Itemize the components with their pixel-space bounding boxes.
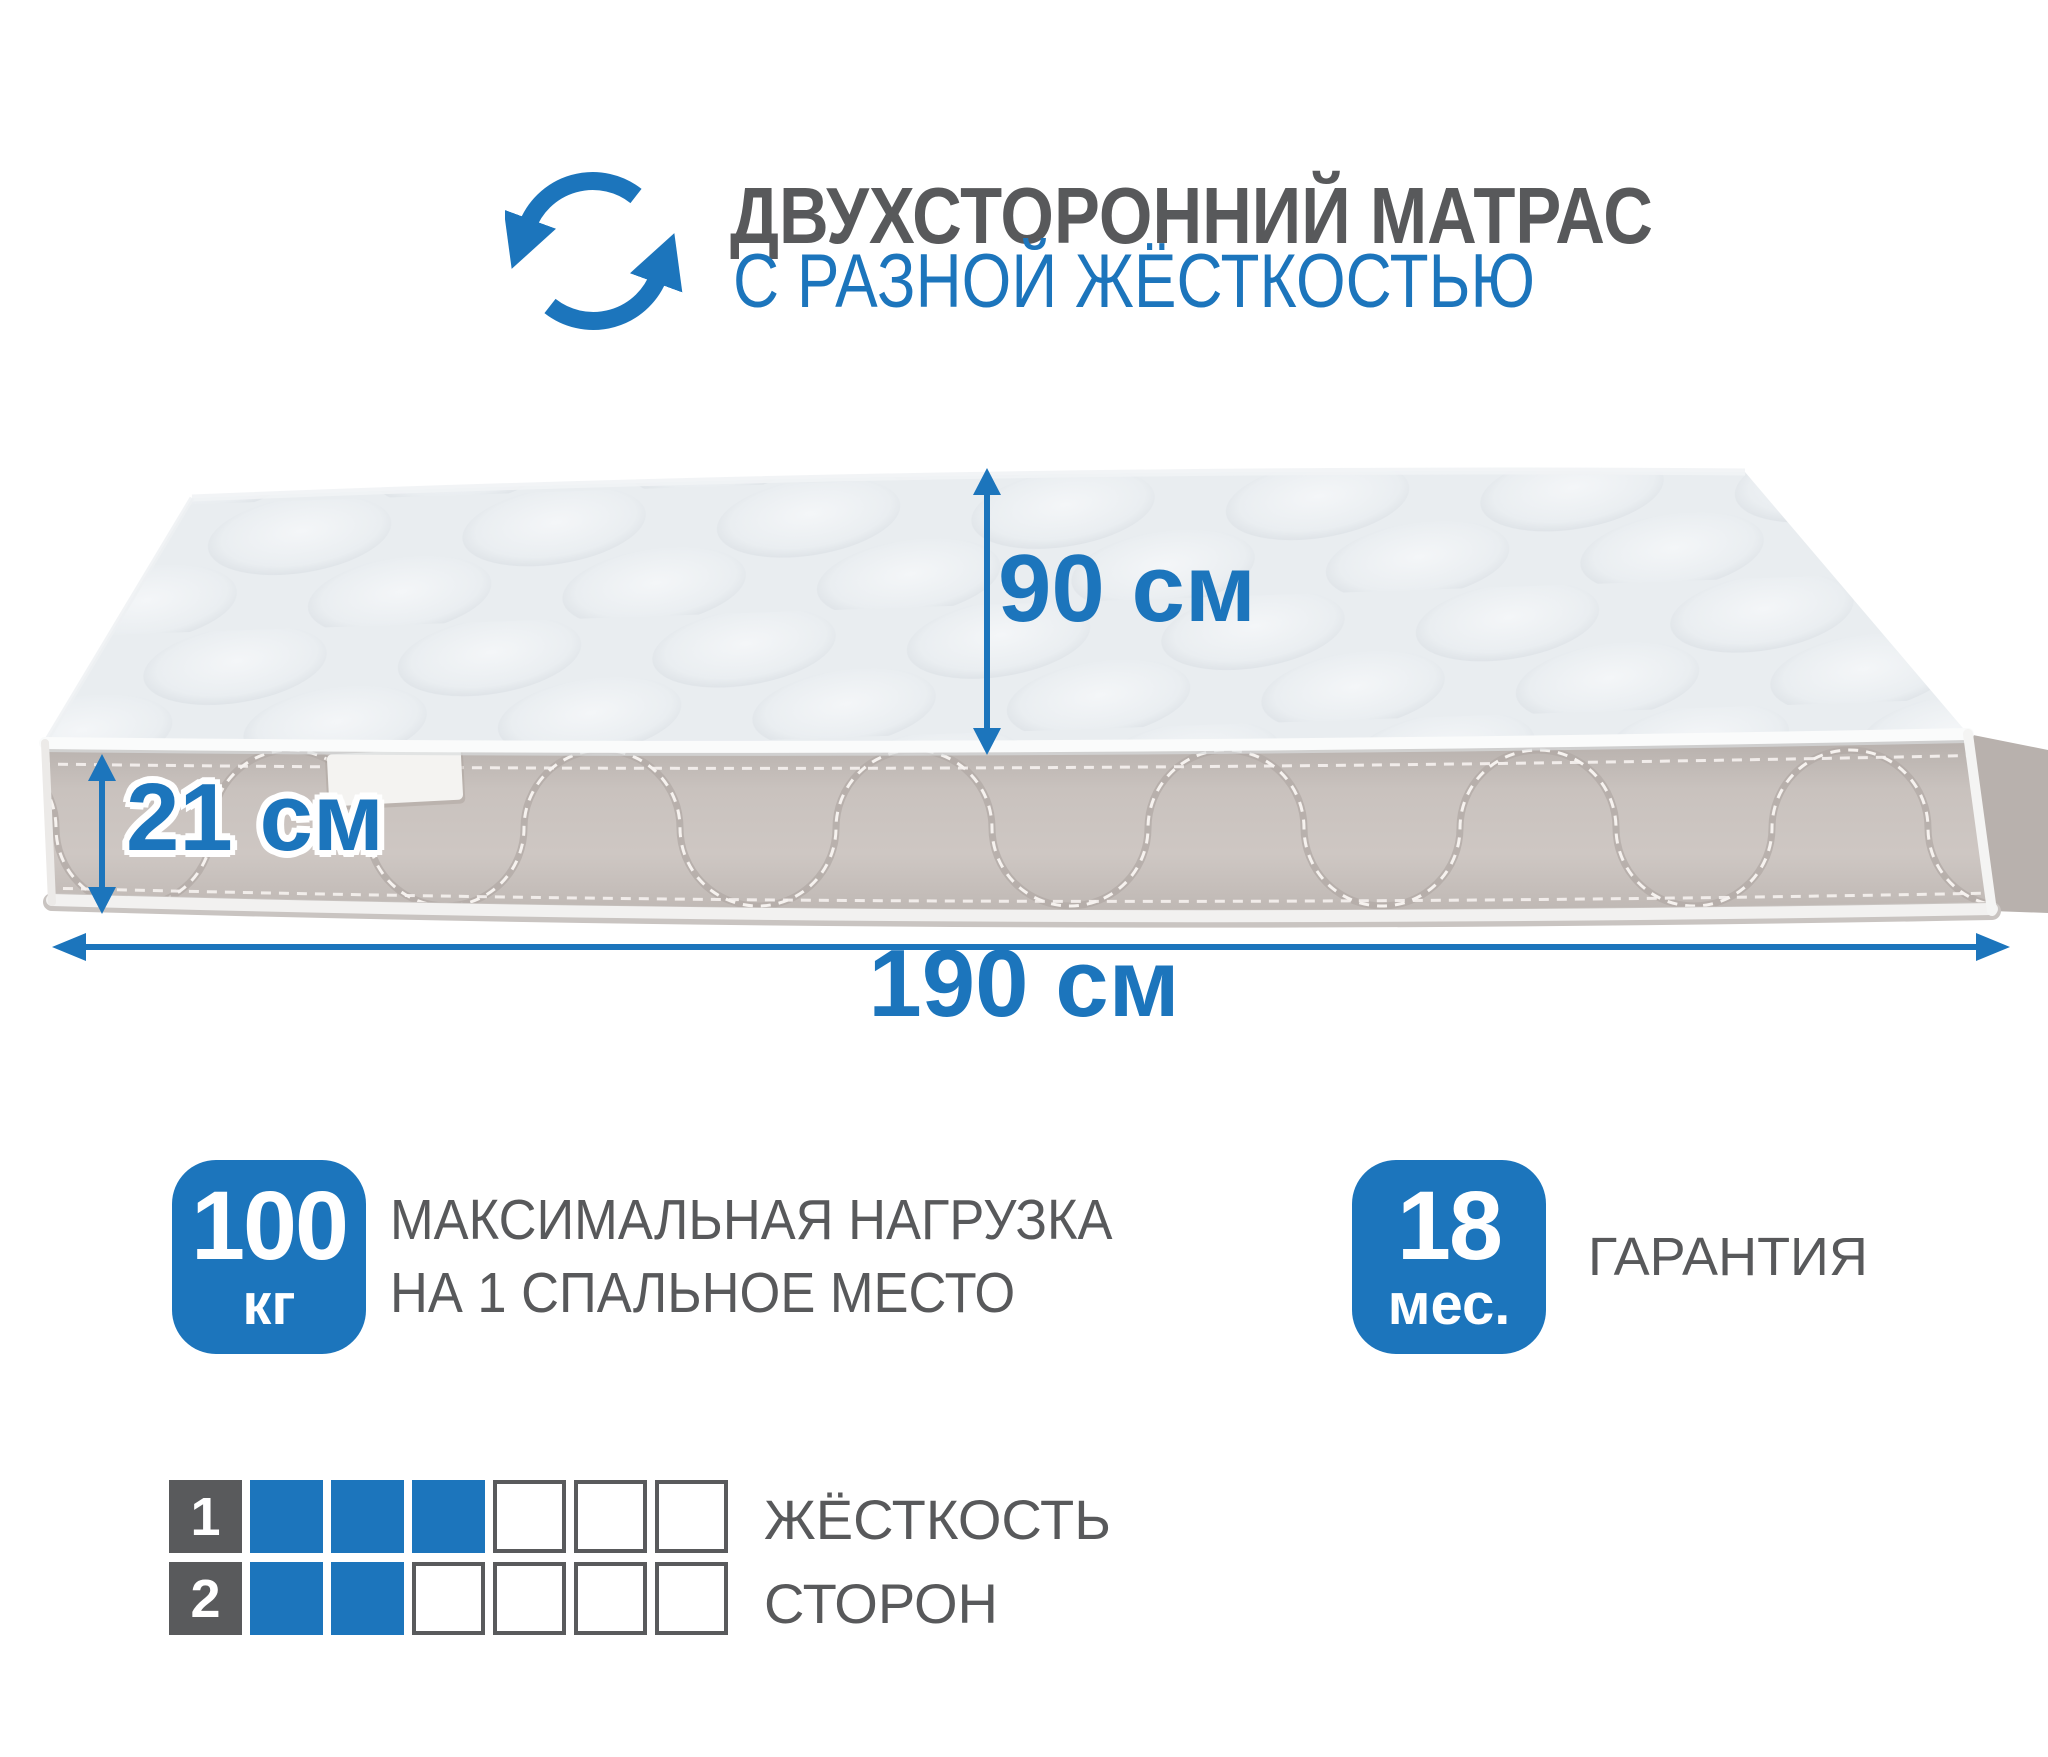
warranty-caption: ГАРАНТИЯ — [1588, 1230, 1868, 1284]
warranty-unit: мес. — [1388, 1276, 1511, 1334]
firmness-label-line2: СТОРОН — [764, 1576, 998, 1632]
arrow-head-down-icon — [973, 728, 1001, 755]
firmness-cell-filled — [250, 1480, 323, 1553]
firmness-cell-empty — [655, 1562, 728, 1635]
firmness-label-line1: ЖЁСТКОСТЬ — [764, 1492, 1111, 1548]
arrow-shaft — [984, 488, 990, 735]
firmness-cell-filled — [412, 1480, 485, 1553]
thickness-arrow — [88, 754, 116, 914]
arrow-head-down-icon — [88, 887, 116, 914]
infographic-canvas: ДВУХСТОРОННИЙ МАТРАС С РАЗНОЙ ЖЁСТКОСТЬЮ — [0, 0, 2048, 1757]
firmness-cell-empty — [574, 1480, 647, 1553]
firmness-cell-empty — [574, 1562, 647, 1635]
firmness-cell-empty — [493, 1480, 566, 1553]
firmness-scale: 12 — [169, 1480, 728, 1635]
firmness-cell-filled — [331, 1480, 404, 1553]
firmness-side-number: 1 — [169, 1480, 242, 1553]
warranty-value: 18 — [1397, 1180, 1501, 1272]
arrow-shaft — [99, 774, 105, 894]
firmness-cell-empty — [412, 1562, 485, 1635]
firmness-side-number: 2 — [169, 1562, 242, 1635]
max-load-caption: МАКСИМАЛЬНАЯ НАГРУЗКА НА 1 СПАЛЬНОЕ МЕСТ… — [390, 1184, 1113, 1330]
firmness-cell-filled — [331, 1562, 404, 1635]
firmness-cell-empty — [493, 1562, 566, 1635]
max-load-value: 100 — [191, 1180, 347, 1272]
depth-label: 90 см — [998, 541, 1256, 637]
max-load-caption-line1: МАКСИМАЛЬНАЯ НАГРУЗКА — [390, 1184, 1113, 1257]
depth-arrow — [973, 468, 1001, 755]
length-label: 190 см — [0, 936, 2048, 1032]
max-load-badge: 100 кг — [172, 1160, 366, 1354]
page-subtitle: С РАЗНОЙ ЖЁСТКОСТЬЮ — [733, 244, 1535, 320]
thickness-label: 21 см — [126, 770, 384, 866]
max-load-caption-line2: НА 1 СПАЛЬНОЕ МЕСТО — [390, 1257, 1113, 1330]
warranty-badge: 18 мес. — [1352, 1160, 1546, 1354]
firmness-row: 1 — [169, 1480, 728, 1553]
rotate-flip-icon — [505, 158, 685, 343]
firmness-row: 2 — [169, 1562, 728, 1635]
firmness-cell-empty — [655, 1480, 728, 1553]
firmness-cell-filled — [250, 1562, 323, 1635]
max-load-unit: кг — [242, 1276, 295, 1334]
